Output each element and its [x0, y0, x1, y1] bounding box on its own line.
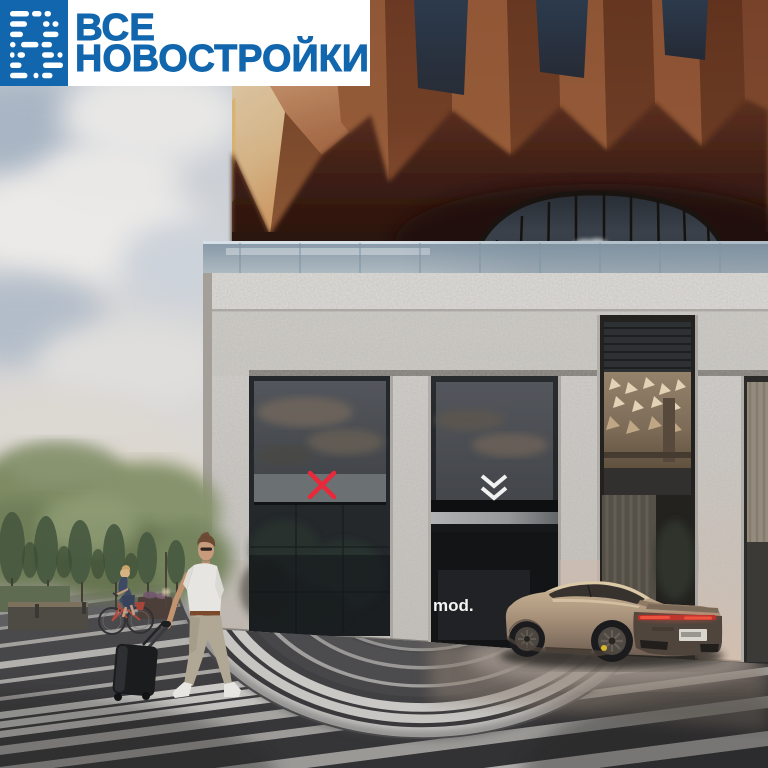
svg-text:НОВОСТРОЙКИ: НОВОСТРОЙКИ [75, 35, 369, 80]
svg-text:mod.: mod. [433, 596, 474, 615]
